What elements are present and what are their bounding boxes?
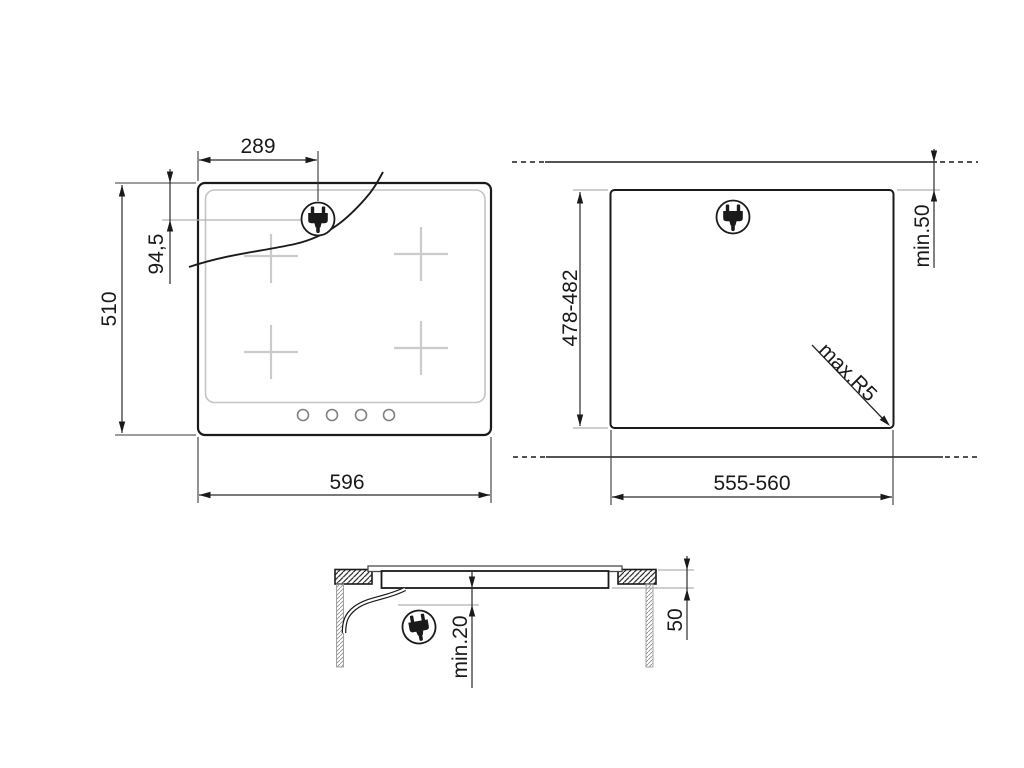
dim-label: 50 <box>664 608 687 631</box>
dim-cutout-depth: 478-482 <box>559 190 608 428</box>
diagram-canvas: 289 510 94,5 596 <box>0 0 1024 768</box>
dim-label: 94,5 <box>145 234 168 275</box>
hob-top-view: 289 510 94,5 596 <box>98 135 491 503</box>
dim-label: 478-482 <box>559 269 582 346</box>
control-knob <box>327 410 338 421</box>
worktop-section-right <box>618 570 656 585</box>
dim-label: 510 <box>98 291 121 326</box>
power-plug-icon <box>717 201 750 234</box>
dim-cutout-width: 555-560 <box>611 430 893 505</box>
control-knob <box>298 410 309 421</box>
worktop-section-left <box>335 570 372 585</box>
cutout-top-view: 478-482 min.50 max.R5 555-560 <box>512 149 978 505</box>
power-plug-icon <box>302 203 335 236</box>
dim-label: min.50 <box>911 204 934 267</box>
dim-hob-width: 596 <box>198 437 491 503</box>
dim-label: 289 <box>240 135 275 158</box>
control-knob <box>384 410 395 421</box>
dim-label: min.20 <box>449 615 472 678</box>
installation-side-view: min.20 50 <box>335 556 694 688</box>
installation-diagram: 289 510 94,5 596 <box>0 0 1024 768</box>
power-plug-icon <box>400 608 438 646</box>
cutout-outline <box>611 190 894 428</box>
hob-body-section <box>382 571 609 588</box>
dim-label: 596 <box>329 471 364 494</box>
cabinet-wall-right <box>646 584 653 667</box>
control-knob <box>356 410 367 421</box>
dim-label: 555-560 <box>713 472 790 495</box>
dim-rear-clearance: min.50 <box>897 149 940 268</box>
dim-hob-depth: 510 <box>98 183 196 435</box>
power-cable <box>344 589 405 633</box>
hob-outline <box>198 183 491 435</box>
